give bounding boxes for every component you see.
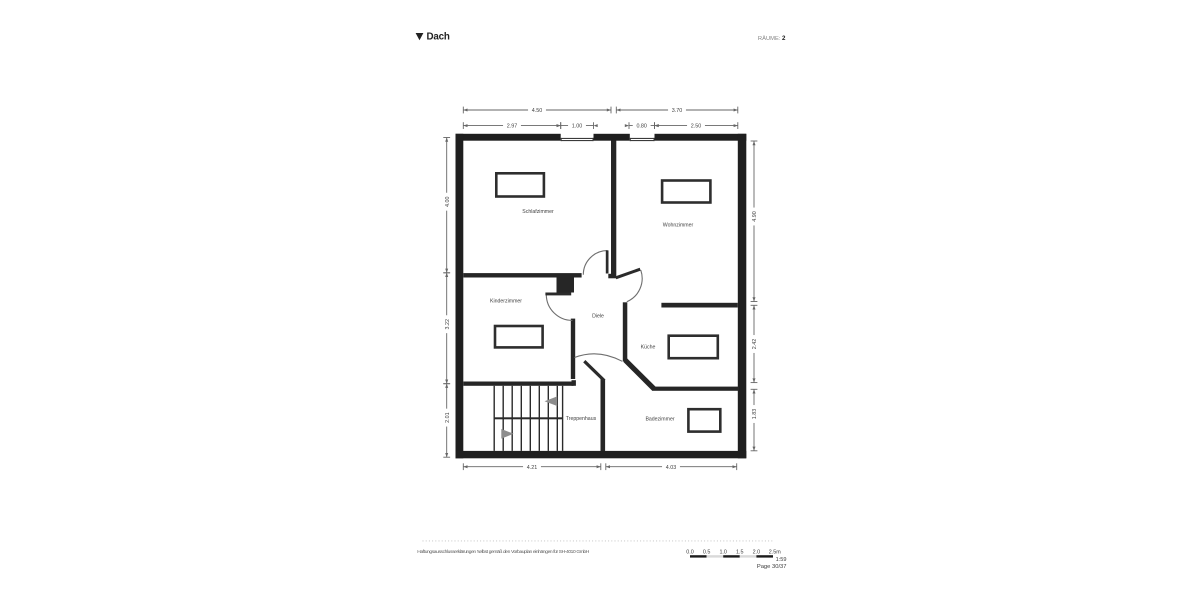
svg-text:Schlafzimmer: Schlafzimmer <box>522 209 554 215</box>
svg-text:2.0: 2.0 <box>753 549 761 555</box>
svg-text:Badezimmer: Badezimmer <box>645 416 674 422</box>
svg-text:2.50: 2.50 <box>691 124 702 130</box>
svg-text:Treppenhaus: Treppenhaus <box>566 416 597 422</box>
svg-text:Wohnzimmer: Wohnzimmer <box>663 222 694 228</box>
svg-text:Diele: Diele <box>592 313 604 319</box>
svg-text:1.83: 1.83 <box>752 409 758 420</box>
svg-text:2.97: 2.97 <box>507 124 518 130</box>
svg-text:1.5: 1.5 <box>736 549 744 555</box>
svg-text:Küche: Küche <box>641 344 656 350</box>
svg-text:4.21: 4.21 <box>527 465 538 471</box>
svg-text:Dach: Dach <box>427 32 450 43</box>
svg-text:Page 30/37: Page 30/37 <box>757 564 787 570</box>
svg-text:2.5m: 2.5m <box>769 549 781 555</box>
svg-text:4.03: 4.03 <box>666 465 677 471</box>
svg-text:3.70: 3.70 <box>672 108 683 114</box>
svg-text:4.00: 4.00 <box>445 196 451 207</box>
svg-text:Haftungsausschlusserklärungen: Haftungsausschlusserklärungen 'selbst ge… <box>417 549 589 555</box>
svg-text:4.90: 4.90 <box>752 211 758 222</box>
svg-text:2.01: 2.01 <box>445 412 451 423</box>
svg-text:1.0: 1.0 <box>719 549 727 555</box>
svg-text:1.00: 1.00 <box>572 124 583 130</box>
svg-text:3.22: 3.22 <box>445 319 451 330</box>
svg-text:4.50: 4.50 <box>532 108 543 114</box>
svg-text:RÄUME: 2: RÄUME: 2 <box>758 35 786 42</box>
svg-text:0.5: 0.5 <box>703 549 711 555</box>
svg-text:1:59: 1:59 <box>776 557 787 563</box>
svg-text:0.80: 0.80 <box>636 124 647 130</box>
svg-text:Kinderzimmer: Kinderzimmer <box>490 298 522 304</box>
svg-text:0.0: 0.0 <box>686 549 694 555</box>
svg-text:2.42: 2.42 <box>752 339 758 350</box>
